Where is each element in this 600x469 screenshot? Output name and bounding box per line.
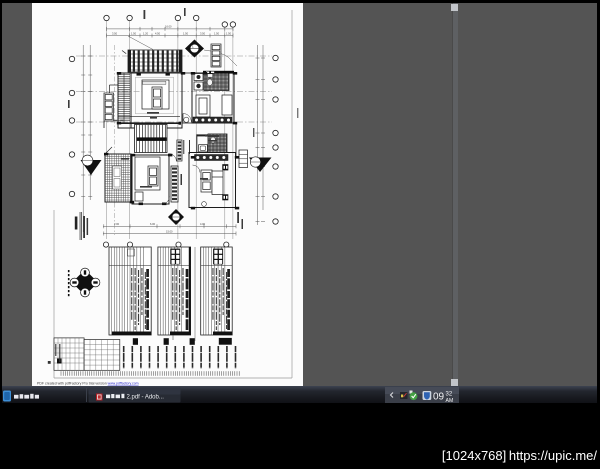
svg-text:AM: AM [446,398,454,404]
svg-text:09: 09 [433,392,445,403]
svg-text:2.pdf - Adob...: 2.pdf - Adob... [127,395,165,401]
svg-text:32: 32 [446,392,453,398]
